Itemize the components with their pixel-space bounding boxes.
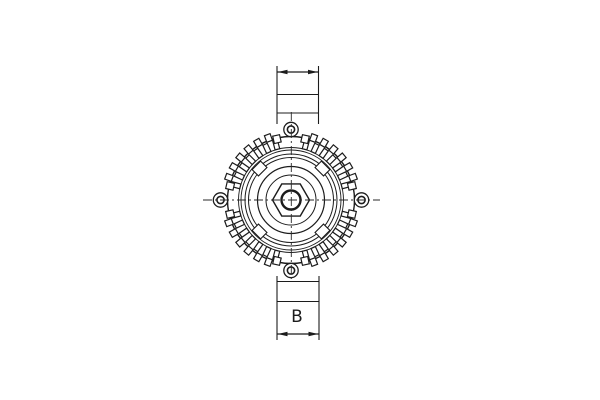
vent-slot xyxy=(338,172,348,180)
top-projection-column xyxy=(277,66,319,124)
centerlines xyxy=(203,112,380,279)
castellation-tooth xyxy=(310,134,318,143)
through-bolt-pad xyxy=(252,224,267,239)
castellation-tooth xyxy=(264,258,272,267)
vent-slot xyxy=(239,163,249,172)
through-bolt-pad xyxy=(315,224,330,239)
castellation-tooth xyxy=(344,229,353,238)
castellation-tooth xyxy=(225,173,234,181)
top-dimension-arrow-left xyxy=(278,70,288,75)
vent-slot xyxy=(239,228,249,237)
castellation-tooth xyxy=(320,253,329,262)
castellation-tooth xyxy=(244,145,253,154)
castellation-tooth xyxy=(236,153,245,162)
vent-slot xyxy=(326,235,336,245)
vent-slot xyxy=(254,148,263,158)
lug-flank-tab xyxy=(347,210,356,219)
castellation-tooth xyxy=(244,246,253,255)
castellation-tooth xyxy=(329,145,338,154)
vent-slot xyxy=(311,143,319,153)
lug-flank-tab xyxy=(226,182,235,191)
castellation-tooth xyxy=(236,238,245,247)
vent-slot xyxy=(263,143,271,153)
castellation-tooth xyxy=(310,258,318,267)
alternator-technical-drawing: B xyxy=(0,0,600,400)
vent-slot xyxy=(333,228,343,237)
castellation-tooth xyxy=(349,173,358,181)
vent-slot xyxy=(234,220,244,228)
castellation-tooth xyxy=(344,163,353,172)
vent-slot xyxy=(246,235,256,245)
castellation-tooth xyxy=(337,153,346,162)
lug-flank-tab xyxy=(301,256,310,265)
vent-slot xyxy=(246,155,256,165)
castellation-tooth xyxy=(254,253,263,262)
lug-flank-tab xyxy=(273,135,282,144)
castellation-tooth xyxy=(254,138,263,147)
dimension-label-b: B xyxy=(291,307,303,327)
lug-flank-tab xyxy=(347,182,356,191)
through-bolt-pad xyxy=(252,161,267,176)
through-bolt-pad xyxy=(315,161,330,176)
castellation-tooth xyxy=(225,219,234,227)
castellation-tooth xyxy=(349,219,358,227)
castellation-tooth xyxy=(320,138,329,147)
vent-slot xyxy=(333,163,343,172)
bottom-dimension-arrow-left xyxy=(278,332,288,337)
drawing-canvas: B xyxy=(0,0,600,400)
castellation-tooth xyxy=(229,229,238,238)
top-dimension-arrow-right xyxy=(308,70,318,75)
vent-slot xyxy=(234,172,244,180)
castellation-tooth xyxy=(337,238,346,247)
bottom-dimension: B xyxy=(277,307,319,336)
vent-slot xyxy=(338,220,348,228)
lug-flank-tab xyxy=(273,256,282,265)
vent-slot xyxy=(319,148,328,158)
castellation-tooth xyxy=(264,134,272,143)
vent-slot xyxy=(263,247,271,257)
bottom-dimension-arrow-right xyxy=(309,332,319,337)
castellation-tooth xyxy=(329,246,338,255)
vent-slot xyxy=(319,242,328,252)
vent-slot xyxy=(311,247,319,257)
lug-flank-tab xyxy=(301,135,310,144)
top-dimension xyxy=(277,70,319,75)
lug-flank-tab xyxy=(226,210,235,219)
vent-slot xyxy=(326,155,336,165)
castellation-tooth xyxy=(229,163,238,172)
vent-slot xyxy=(254,242,263,252)
